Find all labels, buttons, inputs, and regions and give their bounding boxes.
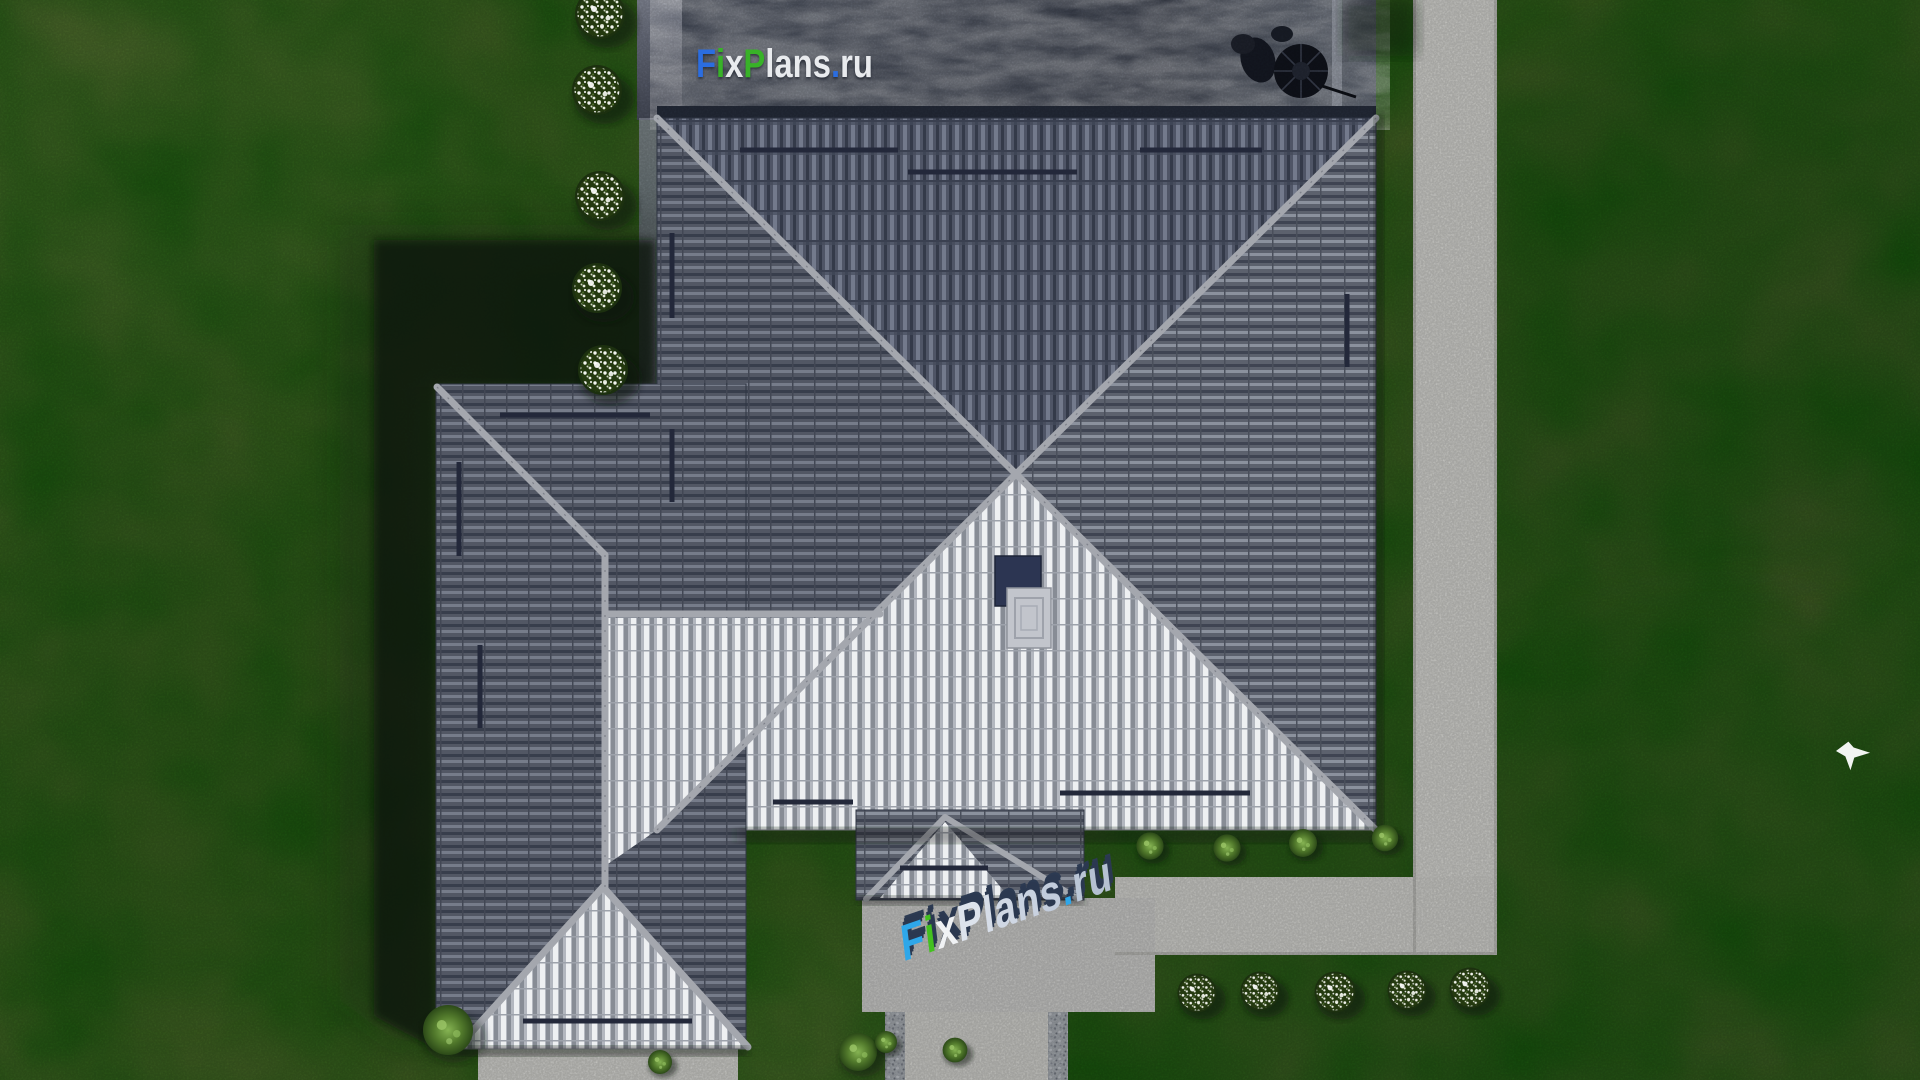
watermark-letter: F	[696, 42, 716, 86]
watermark-letter: i	[716, 42, 725, 86]
watermark-letter: a	[774, 42, 792, 86]
watermark-letter: r	[840, 42, 853, 86]
east-eave-shadow	[1374, 114, 1384, 836]
garage-eave-shadow	[456, 1046, 748, 1056]
patio-corner-shadow	[1343, 0, 1417, 56]
watermark-letter: u	[853, 42, 873, 86]
watermark-letter: l	[765, 42, 774, 86]
watermark-letter: s	[813, 42, 831, 86]
watermark-letter: x	[725, 42, 743, 86]
fixplans-watermark-patio: FixPlans.ru	[696, 44, 873, 84]
watermark-letter: P	[743, 42, 765, 86]
watermark-letter: .	[831, 42, 840, 86]
aerial-render-scene: FixPlans.ru FixPlans.ru	[0, 0, 1920, 1080]
watermark-letter: n	[793, 42, 813, 86]
